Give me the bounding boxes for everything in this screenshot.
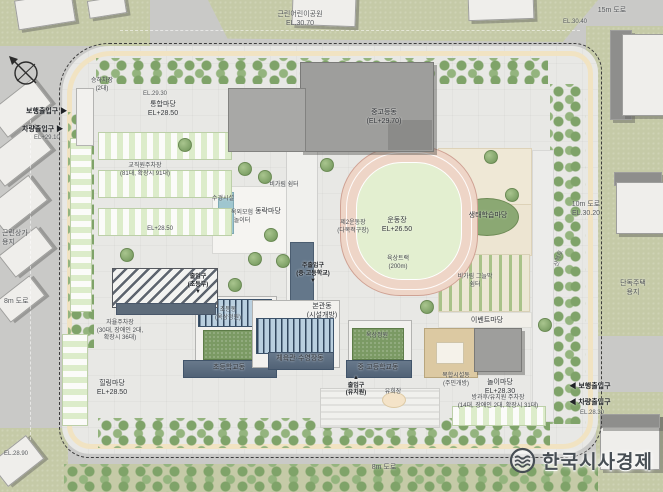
context-building (0, 226, 54, 278)
watermark: 한국시사경제 (509, 447, 653, 474)
midhigh-band (346, 360, 412, 378)
parking-row (98, 208, 232, 236)
tree (238, 162, 252, 176)
running-track-oval (340, 146, 478, 296)
tree (320, 158, 334, 172)
self-parking-strip (62, 334, 88, 426)
road-centerline (120, 30, 580, 31)
building-roof-notch (388, 120, 432, 150)
gym-pool-band (268, 352, 334, 370)
context-building (0, 275, 45, 323)
tree (264, 228, 278, 242)
tree (178, 138, 192, 152)
tree (420, 300, 434, 314)
stand-canopy (112, 268, 218, 308)
tree-belt-east (550, 84, 586, 424)
after-school-parking-row (452, 406, 546, 426)
waves-logo-icon (509, 447, 536, 474)
site-plan: 근린어린이공원 EL.30.7015m 도로EL.30.40EL.29.30보행… (0, 0, 663, 492)
tree (505, 188, 519, 202)
service-drive (532, 150, 554, 422)
parking-row (98, 170, 232, 198)
tree (248, 252, 262, 266)
event-yard-strip (438, 312, 532, 328)
context-building (291, 0, 356, 27)
tree (276, 254, 290, 268)
entry-bridge (290, 242, 314, 306)
kindergarten-court (436, 342, 464, 364)
mid-high-west-wing (228, 88, 306, 152)
context-building (616, 182, 663, 234)
tree (228, 278, 242, 292)
north-arrow-icon (5, 52, 43, 90)
east-roof-garden (352, 328, 404, 360)
main-pv-roof (256, 318, 334, 354)
play-area-circle (382, 392, 406, 408)
shuttle-canopy (76, 88, 94, 146)
context-building (468, 0, 535, 21)
tree (120, 248, 134, 262)
watermark-text: 한국시사경제 (542, 447, 653, 474)
tree (538, 318, 552, 332)
tree (258, 170, 272, 184)
context-green-north (208, 0, 598, 42)
road-centerline (30, 110, 31, 440)
entry-steps (320, 388, 440, 428)
parking-row (98, 132, 232, 160)
context-building (622, 34, 663, 116)
context-building-shadow (600, 414, 660, 428)
track-infield (356, 162, 462, 280)
road-15m-label: 15m 도로 (598, 7, 626, 16)
canopy-edge-band (116, 303, 216, 315)
tree (484, 150, 498, 164)
parking-strip-west (70, 138, 92, 312)
community-building-mass (474, 328, 522, 372)
